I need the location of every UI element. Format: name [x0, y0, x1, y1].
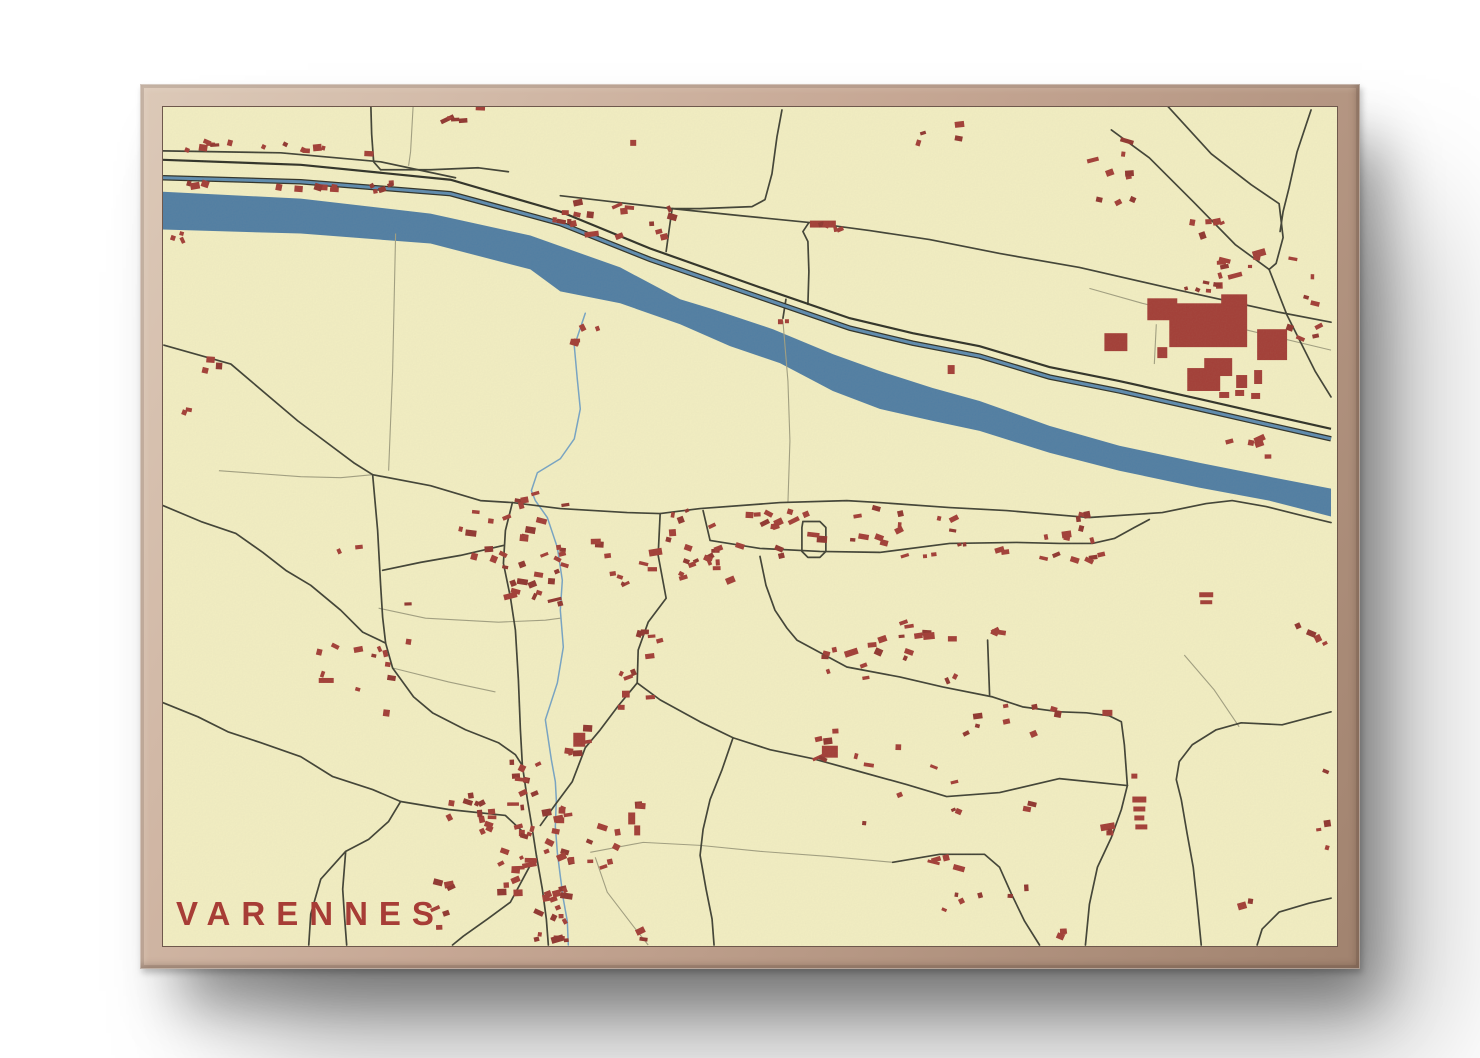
poster-frame: VARENNES [140, 84, 1360, 969]
map-svg [163, 107, 1337, 946]
map-title-label: VARENNES [176, 895, 445, 933]
paper-grain [163, 107, 1337, 946]
map-paper: VARENNES [163, 107, 1337, 946]
